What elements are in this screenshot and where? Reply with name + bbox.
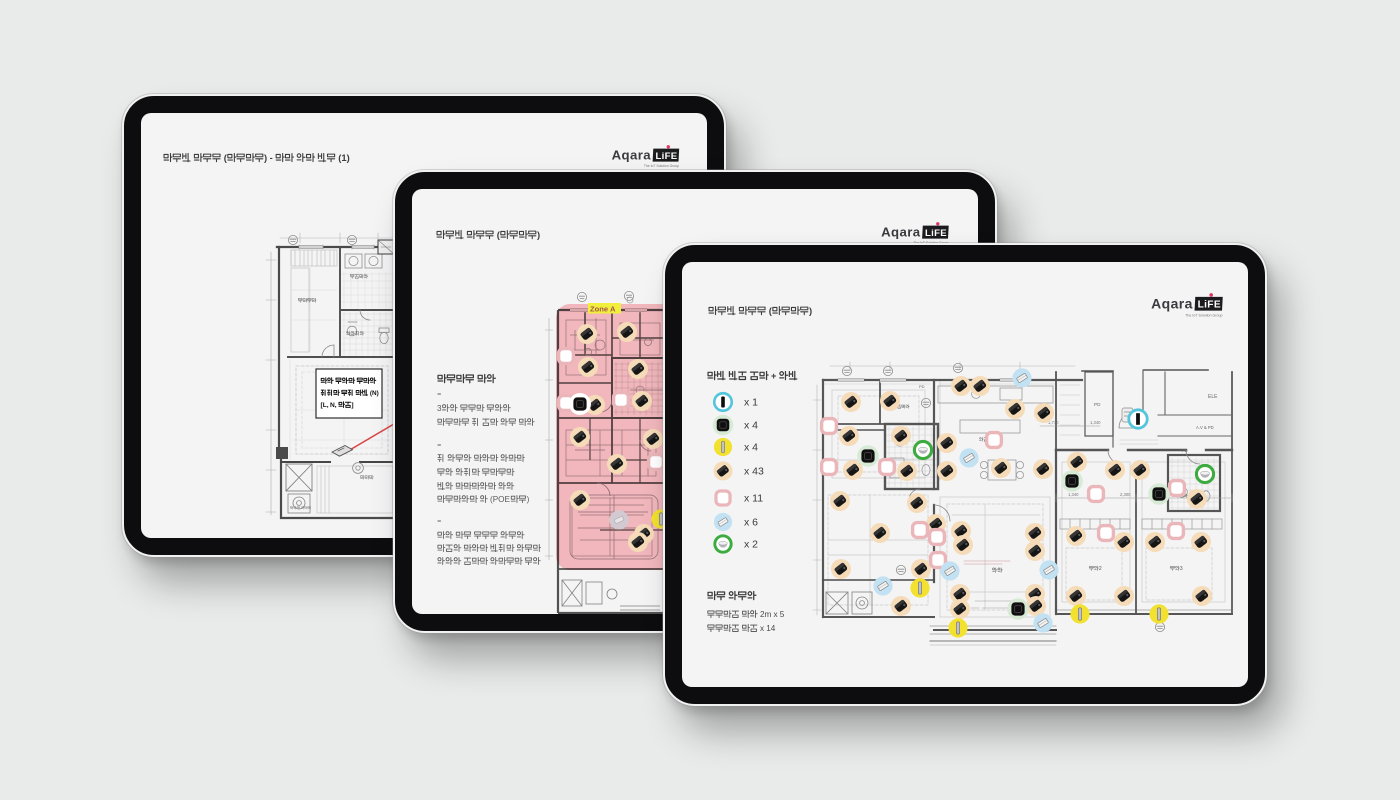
svg-text:x 1: x 1 xyxy=(744,397,758,409)
svg-text:14: 14 xyxy=(766,624,776,633)
svg-text:3: 3 xyxy=(437,404,442,413)
svg-text:N,: N, xyxy=(330,402,337,409)
svg-text:Aqara: Aqara xyxy=(881,225,921,240)
svg-text:x: x xyxy=(760,624,764,633)
svg-text:LiFE: LiFE xyxy=(1198,300,1221,311)
svg-text:PD: PD xyxy=(919,384,925,389)
svg-text:2m: 2m xyxy=(760,610,772,619)
svg-text:[L,: [L, xyxy=(321,402,329,409)
svg-text:x 6: x 6 xyxy=(744,517,758,529)
svg-text:2: 2 xyxy=(1099,566,1102,572)
svg-text:x 11: x 11 xyxy=(744,493,763,505)
svg-text:(: ( xyxy=(224,152,228,163)
svg-text:3: 3 xyxy=(1180,566,1183,572)
svg-text:PD: PD xyxy=(1182,448,1188,453)
svg-text:LiFE: LiFE xyxy=(656,151,678,162)
svg-text:5: 5 xyxy=(780,610,785,619)
svg-text:x: x xyxy=(774,610,778,619)
svg-text:x 4: x 4 xyxy=(744,442,758,454)
svg-text:The IoT Solution Group: The IoT Solution Group xyxy=(644,164,679,168)
svg-text:x 43: x 43 xyxy=(744,466,764,478)
svg-text:): ) xyxy=(809,305,812,316)
svg-text:(N): (N) xyxy=(370,390,379,397)
svg-text:ELE: ELE xyxy=(1208,394,1218,400)
svg-text:-: - xyxy=(270,152,273,163)
svg-text:): ) xyxy=(264,152,267,163)
svg-text:(: ( xyxy=(769,305,773,316)
svg-text:1,340: 1,340 xyxy=(1068,492,1079,497)
svg-text:Aqara: Aqara xyxy=(612,148,652,163)
svg-text:+: + xyxy=(771,371,777,382)
svg-text:]: ] xyxy=(351,402,353,409)
svg-text:Aqara: Aqara xyxy=(1151,295,1193,311)
svg-text:x 2: x 2 xyxy=(744,539,758,551)
svg-text:): ) xyxy=(527,495,530,504)
svg-text:The IoT Solution Group: The IoT Solution Group xyxy=(1185,314,1222,318)
svg-text:PD: PD xyxy=(1094,402,1101,407)
svg-text:2,300: 2,300 xyxy=(1120,492,1131,497)
svg-text:1,340: 1,340 xyxy=(1090,420,1101,425)
svg-text:Zone A: Zone A xyxy=(590,305,616,314)
svg-text:(: ( xyxy=(497,229,501,240)
svg-text:(1): (1) xyxy=(338,152,349,163)
svg-text:(POE: (POE xyxy=(490,495,511,504)
svg-text:A.V & PD: A.V & PD xyxy=(1196,425,1214,430)
svg-text:x 4: x 4 xyxy=(744,420,758,432)
svg-text:LiFE: LiFE xyxy=(925,228,947,239)
svg-text:): ) xyxy=(537,229,540,240)
